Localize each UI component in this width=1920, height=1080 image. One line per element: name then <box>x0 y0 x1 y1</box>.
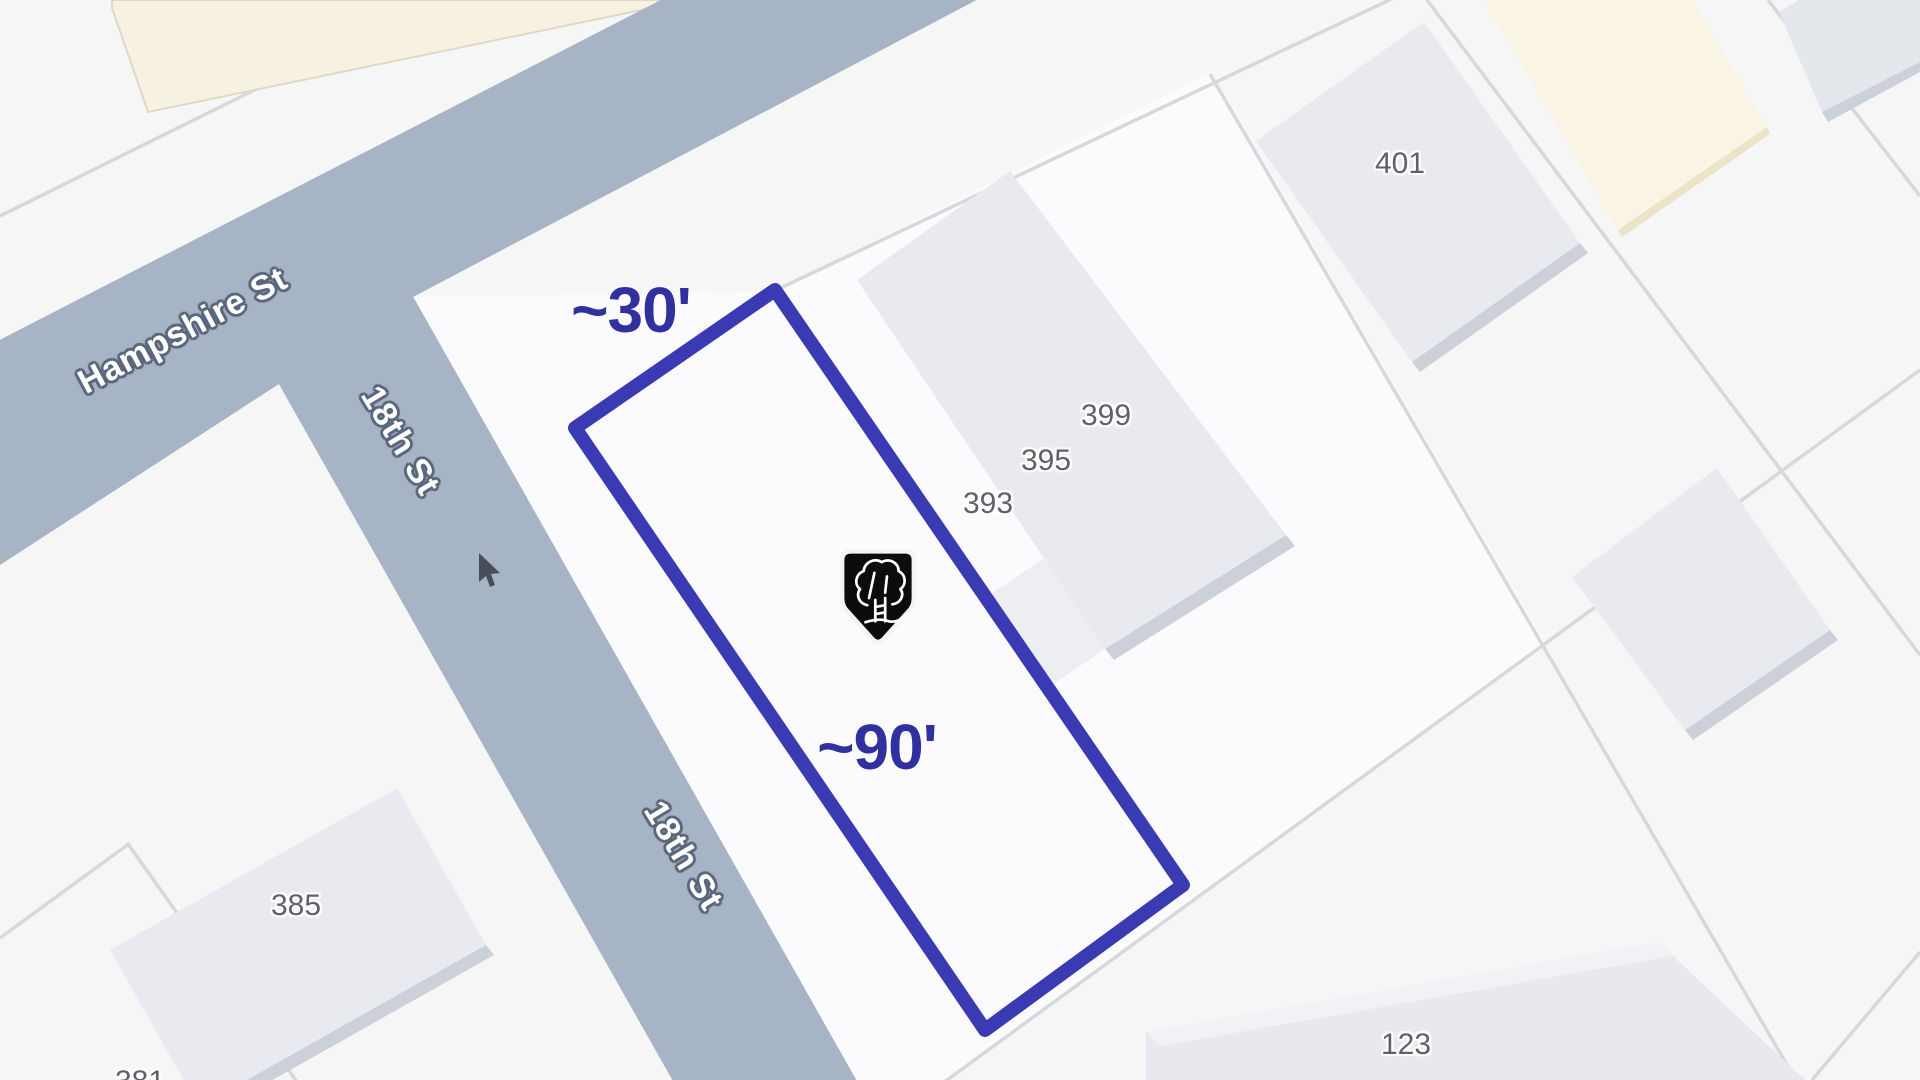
map-canvas[interactable]: Hampshire St 18th St 18th St ~30' ~90' 4… <box>0 0 1920 1080</box>
mouse-pointer-icon <box>478 553 504 591</box>
address-label-381-partial: 381 <box>115 1065 165 1080</box>
address-label-399: 399 <box>1081 399 1131 433</box>
building-123-shape <box>1146 942 1805 1080</box>
building-ne-shape <box>1779 0 1920 112</box>
address-label-395: 395 <box>1021 444 1071 478</box>
address-label-393: 393 <box>963 487 1013 521</box>
parcel-line <box>0 843 130 938</box>
property-shield-tree-icon <box>833 546 923 650</box>
lot-width-label: ~30' <box>571 273 691 347</box>
parcel-line <box>1812 952 1920 1080</box>
lot-depth-label: ~90' <box>817 710 937 784</box>
address-label-401: 401 <box>1375 147 1425 181</box>
address-label-385: 385 <box>271 889 321 923</box>
building-385-shape <box>110 788 486 1080</box>
address-label-123: 123 <box>1381 1028 1431 1062</box>
building-sq-shape <box>1572 468 1830 730</box>
property-marker[interactable] <box>833 546 923 650</box>
